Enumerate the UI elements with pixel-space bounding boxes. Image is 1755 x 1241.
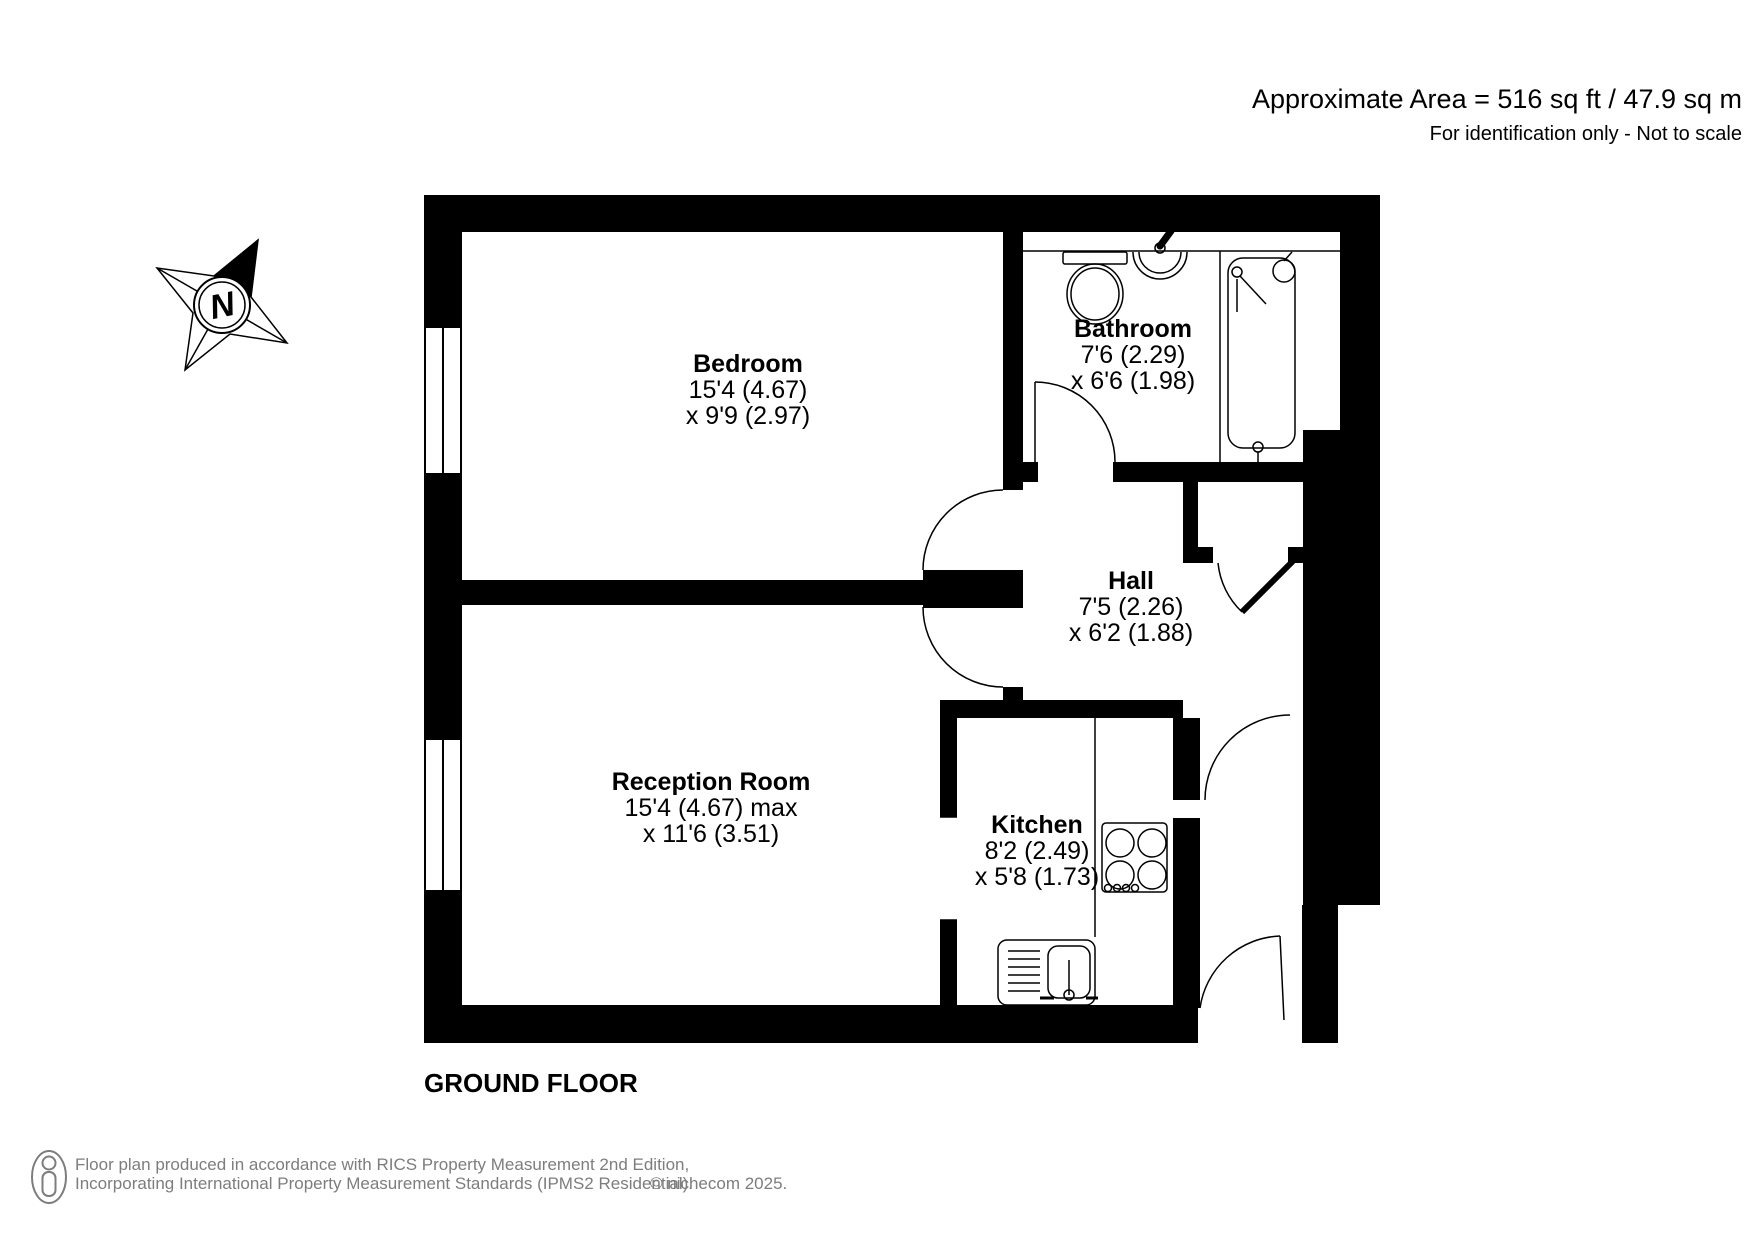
corridor-door-arc bbox=[1205, 715, 1290, 800]
bathroom-dim2: x 6'6 (1.98) bbox=[1071, 367, 1195, 395]
basin-icon bbox=[1133, 231, 1187, 279]
reception-dim2: x 11'6 (3.51) bbox=[643, 820, 779, 848]
reception-door-arc bbox=[923, 607, 1003, 687]
kitchen-label: Kitchen 8'2 (2.49) x 5'8 (1.73) bbox=[975, 811, 1099, 891]
footer-copyright: © nichecom 2025. bbox=[650, 1174, 787, 1193]
rics-logo-icon bbox=[32, 1151, 66, 1203]
footer-line2: Incorporating International Property Mea… bbox=[75, 1174, 693, 1193]
walls bbox=[424, 195, 1380, 1043]
hall-dim2: x 6'2 (1.88) bbox=[1069, 619, 1193, 647]
approximate-area-text: Approximate Area = 516 sq ft / 47.9 sq m bbox=[1252, 84, 1742, 114]
footer-line1: Floor plan produced in accordance with R… bbox=[75, 1155, 689, 1174]
bathroom-dim1: 7'6 (2.29) bbox=[1081, 341, 1186, 369]
bathroom-label: Bathroom 7'6 (2.29) x 6'6 (1.98) bbox=[1071, 315, 1195, 395]
reception-dim1: 15'4 (4.67) max bbox=[625, 794, 798, 822]
floorplan-canvas: Approximate Area = 516 sq ft / 47.9 sq m… bbox=[0, 0, 1755, 1241]
reception-window bbox=[424, 739, 462, 891]
bathroom-name: Bathroom bbox=[1074, 315, 1192, 343]
entrance-door bbox=[1200, 936, 1284, 1020]
kitchen-name: Kitchen bbox=[991, 811, 1083, 839]
compass-rose-icon: N bbox=[157, 240, 287, 370]
disclaimer-text: For identification only - Not to scale bbox=[1430, 123, 1742, 145]
hob-icon bbox=[1102, 823, 1167, 892]
footer: Floor plan produced in accordance with R… bbox=[32, 1151, 787, 1203]
bedroom-name: Bedroom bbox=[693, 350, 803, 378]
kitchen-hatch-ticks bbox=[940, 817, 957, 920]
reception-name: Reception Room bbox=[612, 768, 811, 796]
bath-icon bbox=[1228, 252, 1295, 462]
kitchen-dim1: 8'2 (2.49) bbox=[985, 837, 1090, 865]
kitchen-dim2: x 5'8 (1.73) bbox=[975, 863, 1099, 891]
hall-name: Hall bbox=[1108, 567, 1154, 595]
bedroom-door-arc bbox=[923, 490, 1003, 570]
toilet-icon bbox=[1063, 252, 1127, 324]
bedroom-label: Bedroom 15'4 (4.67) x 9'9 (2.97) bbox=[686, 350, 810, 430]
hall-label: Hall 7'5 (2.26) x 6'2 (1.88) bbox=[1069, 567, 1193, 647]
hall-dim1: 7'5 (2.26) bbox=[1079, 593, 1184, 621]
floor-title: GROUND FLOOR bbox=[424, 1068, 638, 1098]
bedroom-dim2: x 9'9 (2.97) bbox=[686, 402, 810, 430]
bedroom-window bbox=[424, 327, 462, 474]
reception-label: Reception Room 15'4 (4.67) max x 11'6 (3… bbox=[612, 768, 811, 848]
cupboard-door bbox=[1218, 560, 1294, 612]
bedroom-dim1: 15'4 (4.67) bbox=[689, 376, 808, 404]
header: Approximate Area = 516 sq ft / 47.9 sq m… bbox=[1252, 84, 1742, 145]
kitchen-sink-icon bbox=[998, 940, 1098, 1005]
floorplan-page: Approximate Area = 516 sq ft / 47.9 sq m… bbox=[0, 0, 1755, 1241]
